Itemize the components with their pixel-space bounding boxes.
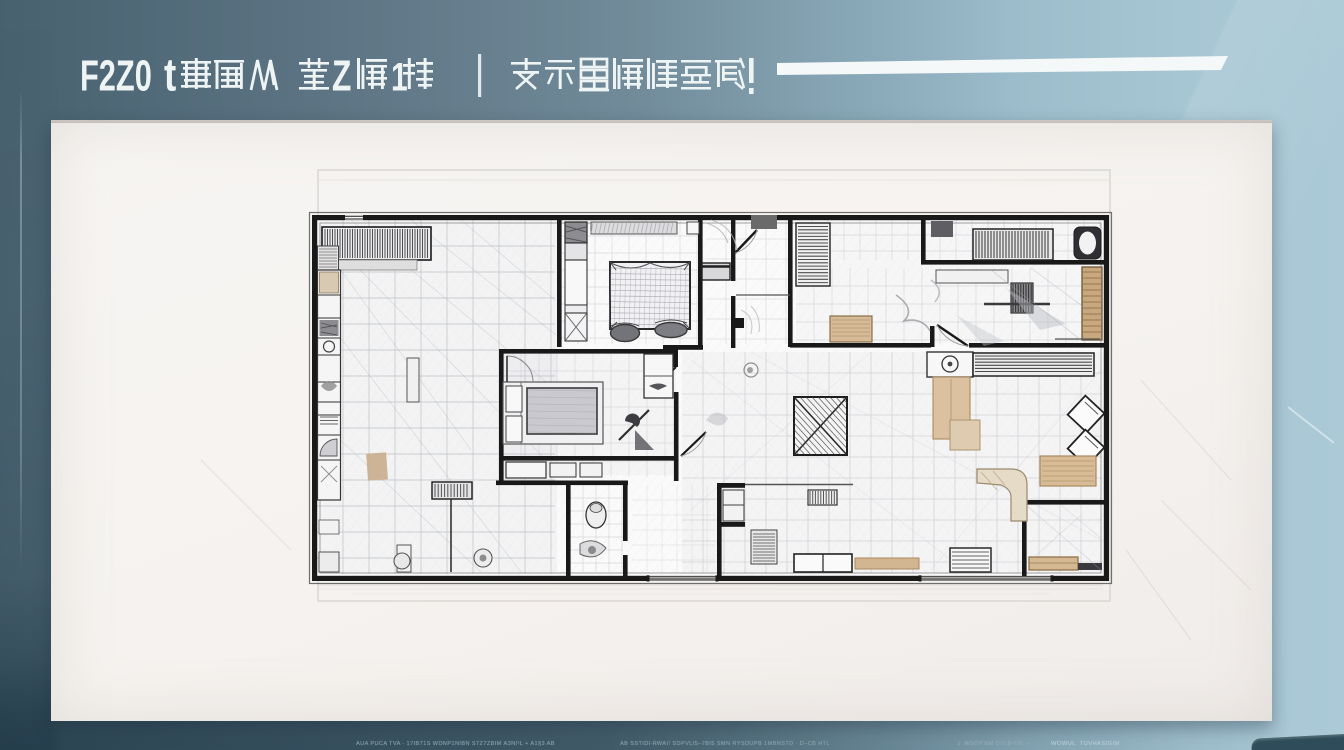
svg-text:t: t (164, 50, 176, 100)
svg-text:Z: Z (332, 51, 351, 100)
svg-text:F2Z0: F2Z0 (80, 52, 152, 101)
svg-text:1: 1 (391, 55, 408, 99)
